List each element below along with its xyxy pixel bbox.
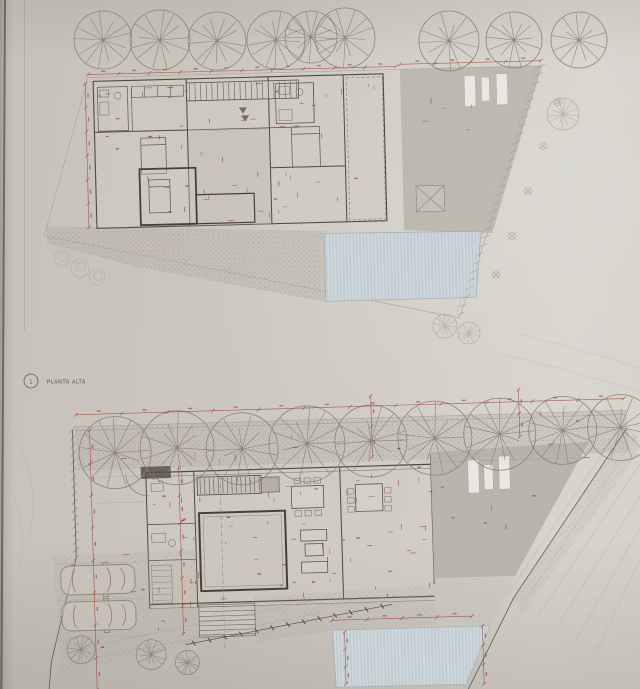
tree-symbol — [130, 10, 190, 70]
dimension-chain — [83, 82, 92, 230]
skylight — [496, 74, 508, 105]
plan-label: 1 PLANTA ALTA — [24, 374, 86, 388]
terrain-contour-left — [0, 430, 33, 572]
court-paving-mark — [498, 456, 510, 489]
dining-table-1 — [291, 485, 324, 508]
tree-symbol — [74, 11, 132, 69]
plant-symbol — [555, 99, 562, 106]
terrain-contour — [518, 334, 640, 369]
upper-floor-plan — [40, 57, 552, 329]
plant-symbol — [540, 143, 547, 150]
terrain-contour — [505, 355, 640, 392]
plant-symbol — [493, 272, 500, 279]
tree-symbol — [486, 12, 542, 68]
skylight — [464, 75, 476, 106]
kitchen-counter — [261, 477, 279, 493]
lower-room-upper-plan — [139, 168, 196, 225]
shrub-symbol — [54, 250, 70, 266]
main-stair-lower — [197, 475, 262, 495]
court-paving-mark — [468, 460, 480, 493]
planter-box — [416, 185, 445, 212]
floor-plan-sheet: 1 PLANTA ALTA — [0, 0, 640, 689]
patio-courtyard — [199, 511, 287, 592]
tree-symbol — [247, 11, 305, 69]
shrub-symbol — [71, 259, 89, 277]
rear-court-texture — [430, 442, 593, 579]
dining-table-2 — [355, 484, 383, 512]
pool-lower — [333, 626, 493, 689]
tree-symbol — [458, 322, 480, 344]
photo-of-architectural-drawing: 1 PLANTA ALTA — [0, 0, 640, 689]
tree-symbol — [547, 98, 579, 130]
gravel-terrace-upper — [47, 219, 326, 308]
shrub-symbol — [89, 269, 105, 285]
ground-floor-plan — [40, 384, 640, 689]
car-top-view — [60, 562, 135, 598]
tree-symbol — [551, 12, 607, 68]
plan-title: PLANTA ALTA — [47, 380, 86, 386]
tree-symbol — [419, 11, 479, 71]
plant-symbol — [525, 188, 532, 195]
pool-upper — [324, 229, 483, 301]
tree-symbol — [175, 650, 200, 675]
skylight — [481, 77, 490, 101]
tree-symbol — [188, 12, 246, 70]
car-top-view — [61, 597, 136, 633]
tree-symbol — [433, 314, 457, 338]
tree-symbol — [285, 11, 337, 63]
paper-fold-line — [24, 0, 25, 330]
plan-marker-number: 1 — [29, 380, 32, 386]
plant-symbol — [509, 233, 516, 240]
